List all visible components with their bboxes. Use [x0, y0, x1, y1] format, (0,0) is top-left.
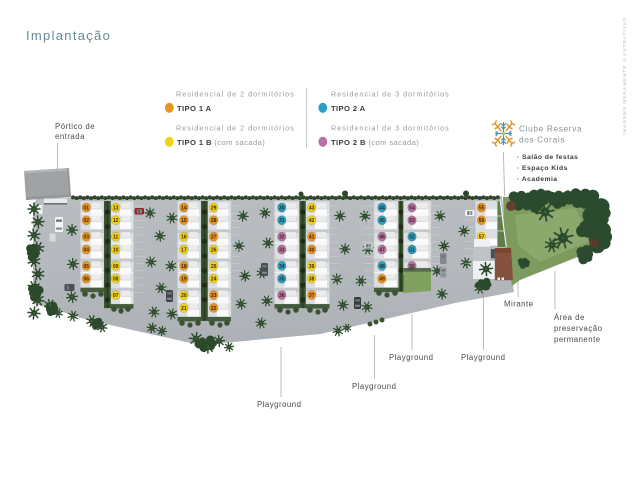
- svg-text:06: 06: [84, 277, 90, 283]
- svg-text:· Espaço Kids: · Espaço Kids: [517, 165, 568, 172]
- svg-text:26: 26: [211, 247, 217, 253]
- svg-text:Clube Reserva: Clube Reserva: [519, 125, 582, 134]
- svg-text:53: 53: [409, 218, 415, 224]
- svg-text:48: 48: [379, 264, 385, 270]
- svg-text:05: 05: [84, 264, 90, 270]
- svg-text:22: 22: [211, 306, 217, 312]
- svg-text:23: 23: [211, 293, 217, 299]
- svg-text:entrada: entrada: [55, 132, 85, 141]
- svg-text:32: 32: [279, 235, 285, 241]
- svg-text:01: 01: [84, 205, 90, 211]
- svg-text:17: 17: [181, 247, 187, 253]
- svg-text:24: 24: [211, 277, 217, 283]
- svg-text:TIPO 2 B (com sacada): TIPO 2 B (com sacada): [331, 138, 419, 147]
- svg-text:18: 18: [181, 264, 187, 270]
- svg-text:13: 13: [113, 205, 119, 211]
- svg-text:21: 21: [181, 306, 187, 312]
- svg-text:28: 28: [211, 218, 217, 224]
- svg-text:IMAGENS MERAMENTE ILUSTRATIVAS: IMAGENS MERAMENTE ILUSTRATIVAS: [622, 17, 627, 135]
- svg-text:Residencial de 3 dormitórios: Residencial de 3 dormitórios: [331, 90, 450, 99]
- svg-text:permanente: permanente: [554, 335, 601, 344]
- svg-text:37: 37: [309, 293, 315, 299]
- svg-text:TIPO 1 A: TIPO 1 A: [177, 104, 212, 113]
- svg-text:41: 41: [309, 235, 315, 241]
- svg-text:Residencial de 3 dormitórios: Residencial de 3 dormitórios: [331, 124, 450, 133]
- svg-text:45: 45: [379, 218, 385, 224]
- svg-text:dos Corais: dos Corais: [519, 136, 565, 145]
- svg-text:preservação: preservação: [554, 324, 603, 333]
- svg-text:TIPO 2 A: TIPO 2 A: [331, 104, 366, 113]
- svg-text:· Salão de festas: · Salão de festas: [517, 154, 578, 161]
- svg-text:55: 55: [479, 205, 485, 211]
- svg-text:49: 49: [379, 277, 385, 283]
- svg-text:39: 39: [309, 264, 315, 270]
- svg-text:36: 36: [279, 293, 285, 299]
- svg-text:31: 31: [279, 218, 285, 224]
- svg-text:03: 03: [84, 235, 90, 241]
- svg-text:Playground: Playground: [257, 400, 301, 409]
- svg-text:Playground: Playground: [461, 353, 505, 362]
- svg-text:Playground: Playground: [389, 353, 433, 362]
- svg-text:02: 02: [84, 218, 90, 224]
- svg-text:Residencial de 2 dormitórios: Residencial de 2 dormitórios: [176, 90, 295, 99]
- svg-text:10: 10: [113, 247, 119, 253]
- svg-text:12: 12: [113, 218, 119, 224]
- svg-text:15: 15: [181, 218, 187, 224]
- svg-text:Playground: Playground: [352, 382, 396, 391]
- svg-text:11: 11: [113, 235, 119, 241]
- svg-text:Área de: Área de: [554, 313, 585, 322]
- svg-text:34: 34: [279, 264, 285, 270]
- svg-text:Mirante: Mirante: [504, 300, 534, 309]
- svg-text:33: 33: [279, 247, 285, 253]
- svg-text:47: 47: [379, 247, 385, 253]
- svg-text:52: 52: [409, 235, 415, 241]
- svg-text:19: 19: [181, 277, 187, 283]
- svg-text:04: 04: [84, 247, 90, 253]
- svg-text:16: 16: [181, 235, 187, 241]
- svg-text:08: 08: [113, 277, 119, 283]
- svg-text:TIPO 1 B (com sacada): TIPO 1 B (com sacada): [177, 138, 265, 147]
- svg-text:51: 51: [409, 247, 415, 253]
- svg-text:07: 07: [113, 293, 119, 299]
- svg-text:30: 30: [279, 205, 285, 211]
- svg-text:· Academia: · Academia: [517, 176, 558, 183]
- svg-text:09: 09: [113, 264, 119, 270]
- svg-text:27: 27: [211, 235, 217, 241]
- svg-text:25: 25: [211, 264, 217, 270]
- svg-text:35: 35: [279, 277, 285, 283]
- svg-text:44: 44: [379, 205, 385, 211]
- svg-text:42: 42: [309, 218, 315, 224]
- svg-text:Implantação: Implantação: [26, 28, 111, 43]
- svg-text:14: 14: [181, 205, 187, 211]
- svg-text:54: 54: [409, 205, 415, 211]
- svg-text:46: 46: [379, 235, 385, 241]
- svg-text:56: 56: [479, 218, 485, 224]
- svg-text:Residencial de 2 dormitórios: Residencial de 2 dormitórios: [176, 124, 295, 133]
- svg-text:43: 43: [309, 205, 315, 211]
- svg-text:29: 29: [211, 205, 217, 211]
- svg-text:20: 20: [181, 293, 187, 299]
- svg-text:38: 38: [309, 277, 315, 283]
- svg-text:Pórtico de: Pórtico de: [55, 122, 95, 131]
- svg-text:40: 40: [309, 247, 315, 253]
